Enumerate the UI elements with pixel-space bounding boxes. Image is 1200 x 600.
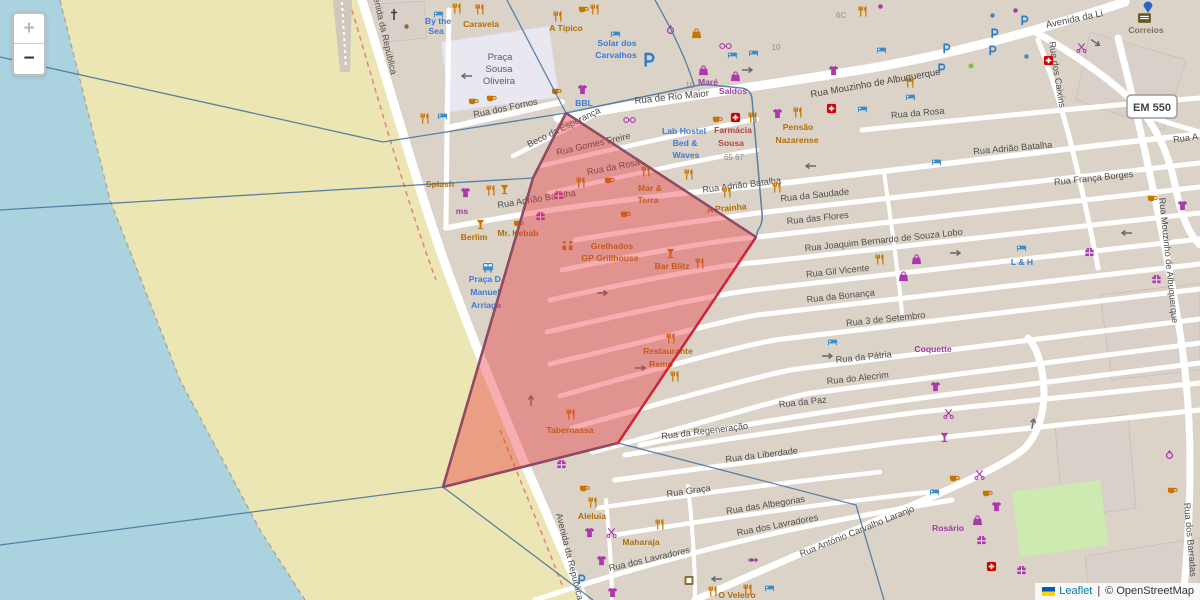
well-icon (685, 576, 694, 585)
poi-label: Waves (673, 150, 700, 160)
poi-label: O Veleiro (718, 590, 755, 600)
poi-label: A Típico (549, 23, 583, 33)
poi-label: Berlim (461, 232, 488, 242)
poi-label: Solar dos (597, 38, 636, 48)
poi-label: Nazarense (776, 135, 819, 145)
accessibility-icon (1013, 8, 1018, 13)
square-label: Oliveira (483, 76, 516, 87)
attribution-bar: Leaflet | © OpenStreetMap (1035, 583, 1200, 600)
poi-label: BBL (575, 98, 593, 108)
map-app: Avenida da República Rua dos Fornos Beco… (0, 0, 1200, 600)
poi-label: Maharaja (622, 537, 659, 547)
osm-copyright: © OpenStreetMap (1105, 585, 1194, 597)
poi-label: Pensão (783, 122, 814, 132)
ukraine-flag-icon (1042, 587, 1055, 596)
house-number: 6C (836, 11, 846, 20)
zoom-control: + − (12, 12, 46, 76)
poi-label: Praça D. (469, 274, 503, 284)
poi-label: Caravela (463, 19, 499, 29)
street-praca-north (447, 10, 449, 128)
poi-label: Correios (1128, 25, 1164, 35)
zoom-out-button[interactable]: − (14, 44, 44, 74)
poi-label: Sousa (718, 138, 744, 148)
poi-label: Sea (428, 26, 444, 36)
poi-label: L & H (1011, 257, 1033, 267)
first-aid-icon (987, 562, 996, 571)
poi-label: Farmácia (714, 125, 752, 135)
poi-dot-icon (1024, 54, 1029, 59)
road-badge-label: EM 550 (1133, 102, 1171, 114)
poi-label: ms (456, 206, 469, 216)
square-label: Praça (488, 52, 514, 63)
house-number: 65 67 (724, 153, 745, 162)
square-label: Sousa (486, 64, 514, 75)
poi-label: Rosário (932, 523, 964, 533)
street-praca-south (446, 128, 447, 228)
poi-dot-icon (990, 13, 995, 18)
tree-icon (969, 64, 974, 69)
poi-label: Lab Hostel (662, 126, 706, 136)
map-canvas[interactable]: Avenida da República Rua dos Fornos Beco… (0, 0, 1200, 600)
leaflet-link[interactable]: Leaflet (1059, 585, 1092, 597)
statue-icon (404, 24, 409, 29)
clinic-icon (827, 104, 836, 113)
zoom-in-button[interactable]: + (14, 14, 44, 44)
clinic-icon (1044, 56, 1053, 65)
poi-label: Aleluia (578, 511, 606, 521)
poi-label: Coquette (914, 344, 951, 354)
house-number: 10 (772, 43, 781, 52)
poi-label: By the (425, 16, 451, 26)
post-office-icon (1138, 13, 1151, 23)
poi-label: Bed & (673, 138, 698, 148)
park-green (1012, 480, 1108, 557)
road-badge: EM 550 (1127, 95, 1177, 118)
poi-label: Manuel (470, 287, 500, 297)
attribution-separator: | (1097, 585, 1100, 597)
shop-icon (878, 4, 883, 9)
pharmacy-icon (731, 113, 740, 122)
poi-label: Carvalhos (595, 50, 637, 60)
